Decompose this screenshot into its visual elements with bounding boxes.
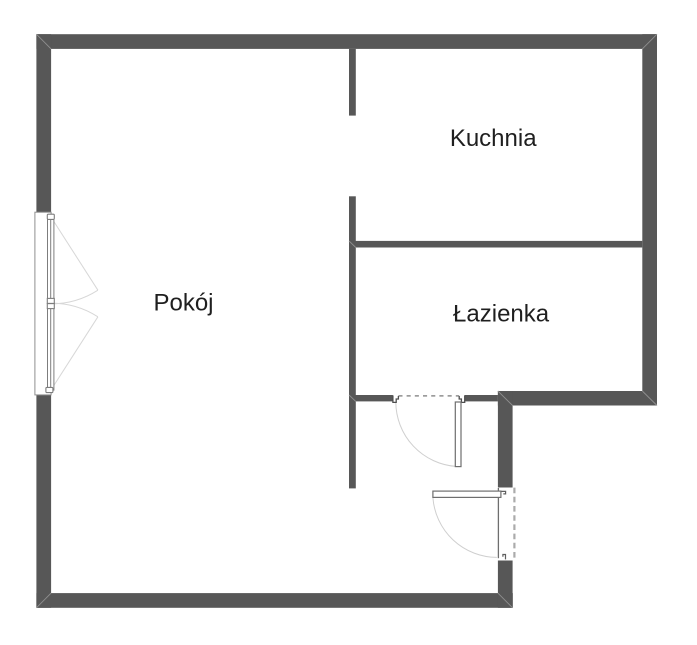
svg-text:Łazienka: Łazienka	[453, 301, 550, 328]
svg-text:Pokój: Pokój	[153, 289, 213, 316]
svg-text:Kuchnia: Kuchnia	[450, 125, 537, 152]
